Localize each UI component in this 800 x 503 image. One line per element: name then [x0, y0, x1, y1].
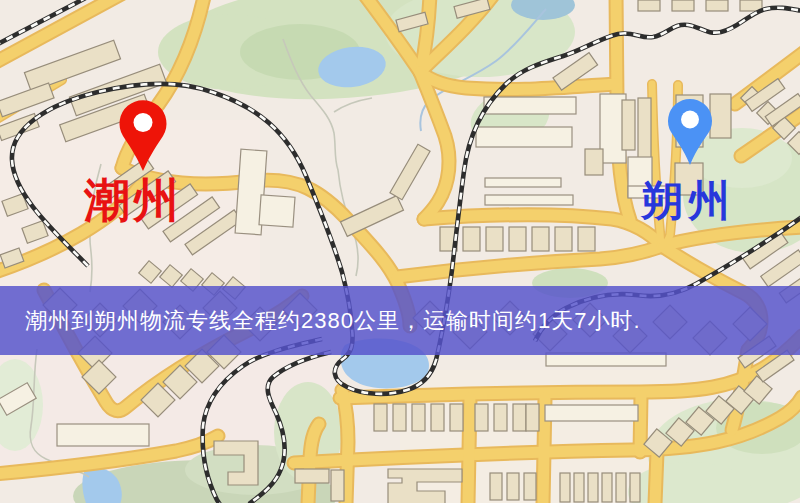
origin-city-label: 潮州	[84, 177, 182, 223]
route-info-banner: 潮州到朔州物流专线全程约2380公里，运输时间约1天7小时.	[0, 286, 800, 355]
map-canvas	[0, 0, 800, 503]
logistics-route-map: 潮州 朔州 潮州到朔州物流专线全程约2380公里，运输时间约1天7小时.	[0, 0, 800, 503]
destination-city-label: 朔州	[641, 180, 735, 222]
route-info-text: 潮州到朔州物流专线全程约2380公里，运输时间约1天7小时.	[0, 306, 641, 336]
